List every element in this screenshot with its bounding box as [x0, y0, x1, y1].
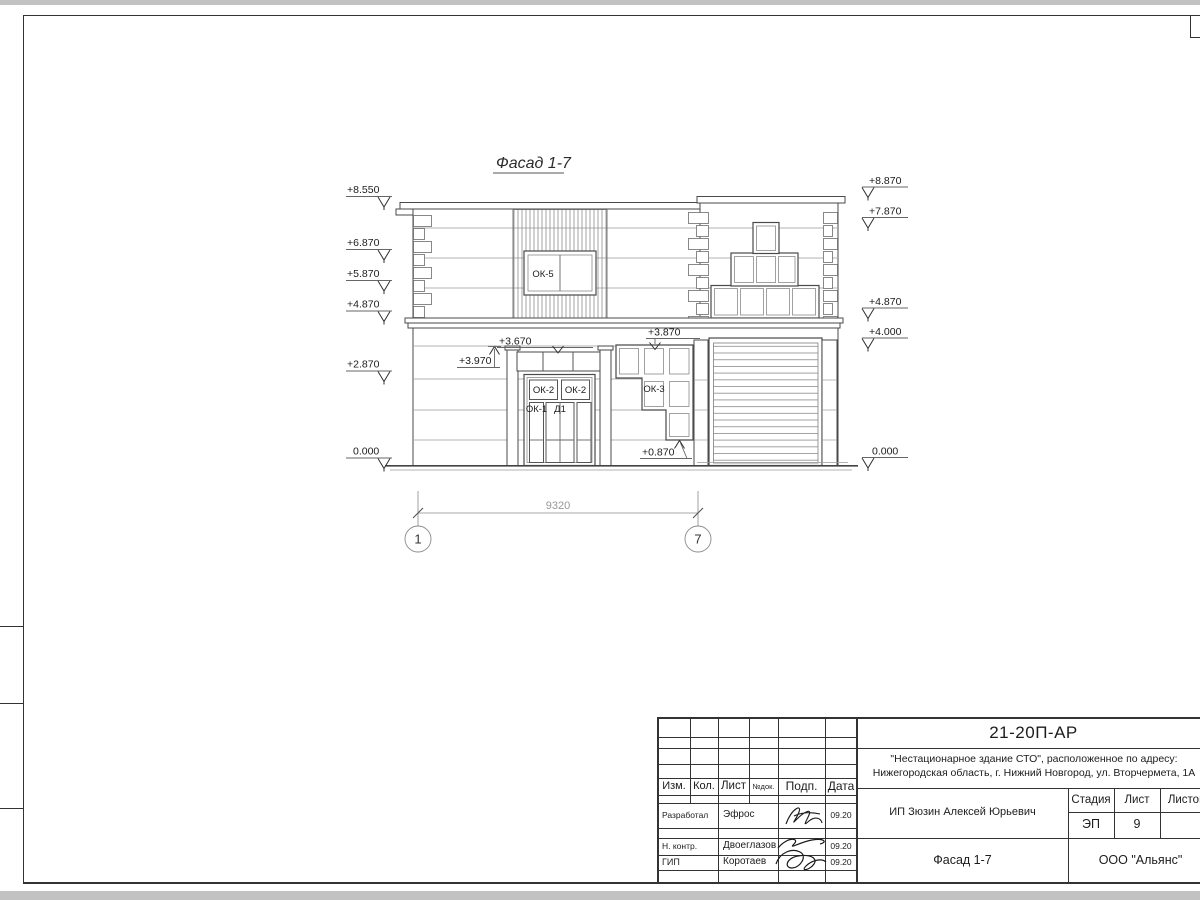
- doc-number: 21-20П-АР: [857, 717, 1200, 748]
- sidelight-right: [577, 403, 591, 463]
- change-header-kol: Кол.: [690, 778, 718, 795]
- elevation-mark: +4.870: [862, 296, 908, 322]
- window-ok5-label: ОК-5: [532, 269, 553, 280]
- quoins-middle: [688, 212, 709, 318]
- stage-value: ЭП: [1068, 812, 1114, 838]
- axis-label-7: 7: [694, 532, 701, 547]
- elevation-mark: +8.870: [862, 175, 908, 201]
- door-d1-label: Д1: [554, 404, 566, 415]
- titleblock-line: [658, 764, 857, 765]
- svg-text:+3.970: +3.970: [459, 355, 492, 367]
- project-name: "Нестационарное здание СТО", расположенн…: [860, 753, 1200, 780]
- svg-text:+8.870: +8.870: [869, 175, 902, 187]
- signature-razrabotal: [782, 802, 826, 830]
- axis-label-1: 1: [414, 532, 421, 547]
- window-ok3-label: ОК-3: [643, 384, 664, 395]
- project-name-line2: Нижегородская область, г. Нижний Новгоро…: [860, 767, 1200, 781]
- sheet-header: Лист: [1114, 788, 1160, 812]
- garage-gate: [694, 338, 837, 466]
- stage-header: Стадия: [1068, 788, 1114, 812]
- window-ok2-right-label: ОК-2: [565, 385, 586, 396]
- titleblock-line: [658, 828, 857, 829]
- gate-pilaster-left: [694, 340, 708, 466]
- titleblock-line: [658, 795, 857, 796]
- sig-row-role: Н. контр.: [660, 838, 720, 855]
- svg-text:+4.000: +4.000: [869, 326, 902, 338]
- view-title-text: Фасад 1-7: [496, 155, 572, 172]
- elevation-marks-left: +8.550 +6.870 +5.870 +4.870 +2.870: [346, 184, 392, 472]
- change-header-izm: Изм.: [658, 778, 690, 795]
- elevation-mark: +5.870: [346, 268, 392, 294]
- elevation-mark: 0.000: [346, 446, 392, 472]
- dimension-axes: 9320 1 7: [405, 491, 711, 552]
- cornice-left: [400, 203, 702, 210]
- cornice-right: [697, 197, 845, 204]
- entrance-unit: ОК-2 ОК-2 ОК-1 Д1: [524, 375, 595, 466]
- elevation-mark: +4.870: [346, 299, 392, 325]
- change-header-data: Дата: [825, 778, 857, 795]
- facade-second-floor: ОК-5: [396, 197, 845, 320]
- drawing-sheet: Фасад 1-7 ОК-5: [0, 0, 1200, 900]
- dimension-label: 9320: [546, 500, 570, 512]
- window-ok2-left-label: ОК-2: [533, 385, 554, 396]
- quoins-right: [823, 212, 838, 318]
- change-header-podp: Подп.: [778, 778, 825, 795]
- sig-row-role: ГИП: [660, 855, 720, 870]
- titleblock-line: [658, 748, 1200, 749]
- quoins-left: [413, 215, 432, 319]
- titleblock-line: [658, 737, 857, 738]
- svg-text:0.000: 0.000: [353, 446, 379, 458]
- drawing-title-cell: Фасад 1-7: [857, 838, 1068, 883]
- roller-shutter: [714, 343, 819, 463]
- svg-text:+8.550: +8.550: [347, 184, 380, 196]
- svg-text:+0.870: +0.870: [642, 447, 675, 459]
- elevation-mark: +7.870: [862, 206, 908, 232]
- svg-text:+6.870: +6.870: [347, 237, 380, 249]
- elevation-mark: +8.550: [346, 184, 392, 210]
- elevation-mark: +2.870: [346, 359, 392, 385]
- sig-row-name: Эфрос: [721, 803, 780, 828]
- signature-nkontr-gip: [770, 834, 834, 874]
- titleblock-line: [657, 717, 659, 883]
- svg-text:+4.870: +4.870: [869, 296, 902, 308]
- svg-text:+2.870: +2.870: [347, 359, 380, 371]
- floor-band: [405, 318, 843, 328]
- change-header-ndok: №док.: [749, 778, 778, 795]
- elevation-mark: +6.870: [346, 237, 392, 263]
- svg-text:+3.670: +3.670: [499, 336, 532, 348]
- svg-text:0.000: 0.000: [872, 446, 898, 458]
- cornice-ledge: [396, 209, 414, 215]
- elevation-mark: 0.000: [862, 446, 908, 472]
- window-ok5: ОК-5: [524, 251, 596, 295]
- sig-row-date: 09.20: [825, 803, 857, 828]
- sheet-value: 9: [1114, 812, 1160, 838]
- sheets-header: Листов: [1160, 788, 1200, 812]
- sig-row-role: Разработал: [660, 803, 720, 828]
- svg-text:+4.870: +4.870: [347, 299, 380, 311]
- entrance-transom-band: [517, 352, 600, 371]
- gate-pilaster-right: [822, 340, 837, 466]
- facade-first-floor: ОК-2 ОК-2 ОК-1 Д1 ОК-3: [385, 328, 858, 470]
- project-name-line1: "Нестационарное здание СТО", расположенн…: [860, 753, 1200, 767]
- svg-text:+5.870: +5.870: [347, 268, 380, 280]
- change-header-list: Лист: [718, 778, 749, 795]
- elevation-marks-right: +8.870 +7.870 +4.870 +4.000 0.000: [862, 175, 908, 471]
- client-name: ИП Зюзин Алексей Юрьевич: [857, 788, 1068, 838]
- window-ok1-label: ОК-1: [526, 404, 547, 415]
- svg-text:+3.870: +3.870: [648, 327, 681, 339]
- elevation-mark: +4.000: [862, 326, 908, 352]
- svg-text:+7.870: +7.870: [869, 206, 902, 218]
- company-cell: ООО "Альянс": [1068, 838, 1200, 883]
- view-title: Фасад 1-7: [493, 155, 572, 173]
